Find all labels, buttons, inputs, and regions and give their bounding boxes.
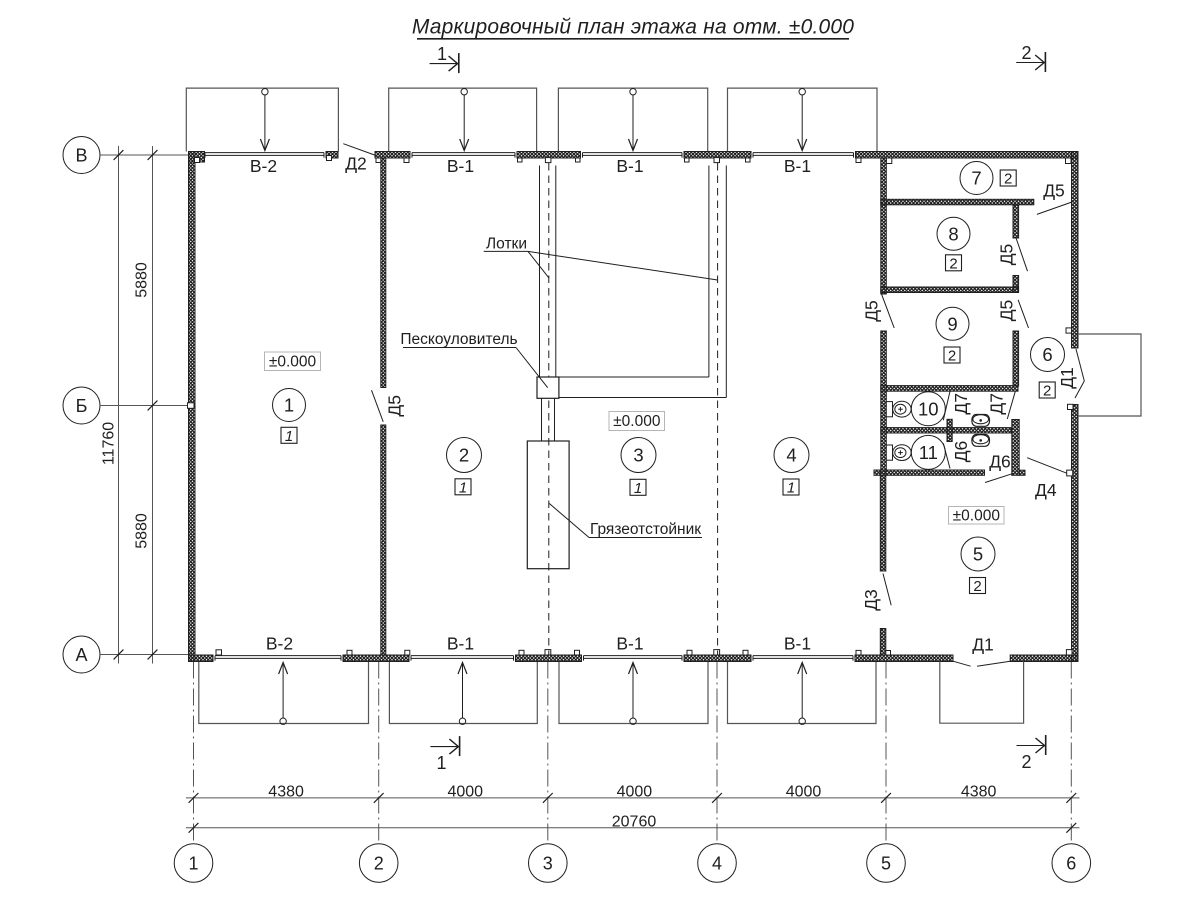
svg-text:8: 8	[948, 223, 958, 244]
svg-text:В-1: В-1	[447, 156, 474, 176]
svg-text:3: 3	[633, 445, 643, 466]
svg-text:6: 6	[1066, 854, 1076, 874]
svg-text:4380: 4380	[268, 783, 304, 800]
svg-text:±0.000: ±0.000	[953, 508, 1001, 525]
svg-text:В-1: В-1	[784, 156, 811, 176]
svg-text:Д5: Д5	[997, 300, 1017, 322]
svg-text:5: 5	[973, 544, 983, 565]
svg-text:4000: 4000	[447, 783, 483, 800]
svg-text:В-2: В-2	[266, 634, 293, 654]
svg-text:6: 6	[1042, 344, 1052, 365]
svg-text:4000: 4000	[617, 783, 653, 800]
svg-text:Д5: Д5	[385, 395, 405, 417]
svg-text:Грязеотстойник: Грязеотстойник	[590, 521, 701, 538]
svg-text:2: 2	[973, 578, 981, 595]
svg-text:Д1: Д1	[1057, 367, 1077, 389]
svg-text:5880: 5880	[134, 513, 151, 549]
svg-text:1: 1	[787, 480, 795, 497]
svg-text:11760: 11760	[101, 422, 118, 465]
svg-text:В-1: В-1	[784, 634, 811, 654]
svg-text:Д3: Д3	[861, 589, 881, 611]
svg-text:Д7: Д7	[951, 393, 971, 415]
svg-text:Д2: Д2	[345, 154, 367, 174]
svg-text:1: 1	[284, 395, 294, 416]
svg-text:1: 1	[634, 480, 642, 497]
svg-text:2: 2	[1021, 752, 1031, 772]
svg-text:1: 1	[437, 44, 447, 64]
svg-text:2: 2	[1021, 43, 1031, 63]
svg-text:3: 3	[543, 854, 553, 874]
svg-text:7: 7	[971, 168, 981, 189]
svg-text:Д5: Д5	[1043, 181, 1065, 201]
svg-text:4380: 4380	[961, 783, 997, 800]
svg-text:В: В	[75, 146, 87, 166]
svg-text:20760: 20760	[612, 813, 657, 830]
svg-text:2: 2	[1043, 383, 1051, 400]
svg-text:±0.000: ±0.000	[613, 413, 661, 430]
svg-text:Маркировочный план этажа на от: Маркировочный план этажа на отм. ±0.000	[412, 16, 854, 39]
svg-text:±0.000: ±0.000	[269, 354, 317, 371]
svg-text:5880: 5880	[134, 262, 151, 298]
svg-text:Лотки: Лотки	[486, 236, 527, 253]
svg-text:4: 4	[786, 445, 796, 466]
svg-text:2: 2	[949, 255, 957, 272]
svg-text:Д6: Д6	[951, 441, 971, 463]
svg-text:2: 2	[374, 854, 384, 874]
svg-text:Д5: Д5	[997, 244, 1017, 266]
svg-text:В-1: В-1	[616, 634, 643, 654]
svg-text:В-1: В-1	[447, 634, 474, 654]
svg-text:1: 1	[436, 753, 446, 773]
svg-text:11: 11	[919, 442, 938, 463]
svg-text:А: А	[75, 645, 87, 665]
svg-text:1: 1	[188, 854, 198, 874]
svg-text:9: 9	[947, 313, 957, 334]
svg-text:В-1: В-1	[616, 156, 643, 176]
svg-text:Пескоуловитель: Пескоуловитель	[400, 331, 517, 348]
svg-text:Д7: Д7	[986, 393, 1006, 415]
svg-text:Д4: Д4	[1035, 480, 1057, 500]
svg-text:Д6: Д6	[989, 452, 1011, 472]
svg-text:1: 1	[459, 479, 467, 496]
svg-text:Б: Б	[76, 396, 88, 416]
svg-text:2: 2	[1004, 171, 1012, 188]
svg-text:1: 1	[285, 428, 293, 445]
svg-text:Д1: Д1	[972, 635, 994, 655]
svg-text:4: 4	[712, 854, 722, 874]
svg-text:4000: 4000	[786, 783, 822, 800]
svg-text:5: 5	[881, 854, 891, 874]
svg-text:Д5: Д5	[862, 300, 882, 322]
svg-text:10: 10	[918, 398, 939, 419]
svg-text:2: 2	[459, 445, 469, 466]
svg-text:В-2: В-2	[250, 156, 277, 176]
svg-text:2: 2	[948, 348, 956, 365]
